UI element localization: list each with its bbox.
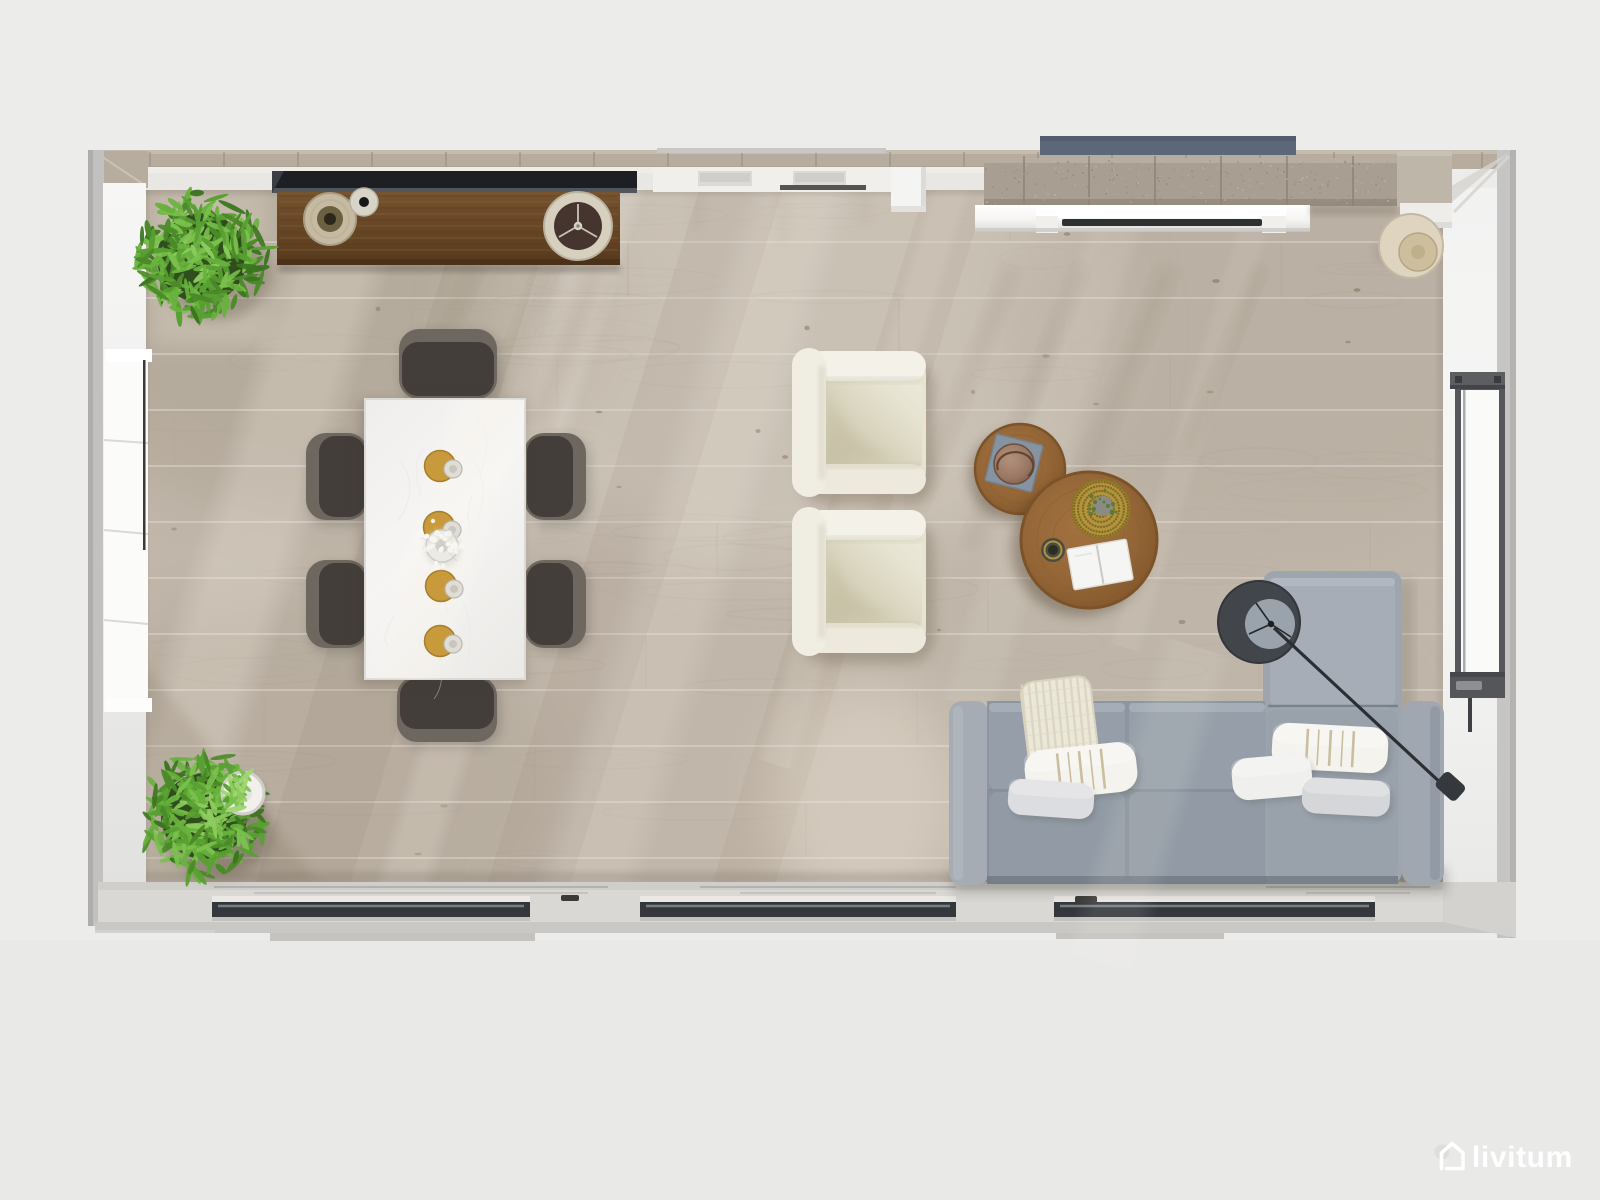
svg-text:livitum: livitum bbox=[1472, 1141, 1573, 1174]
